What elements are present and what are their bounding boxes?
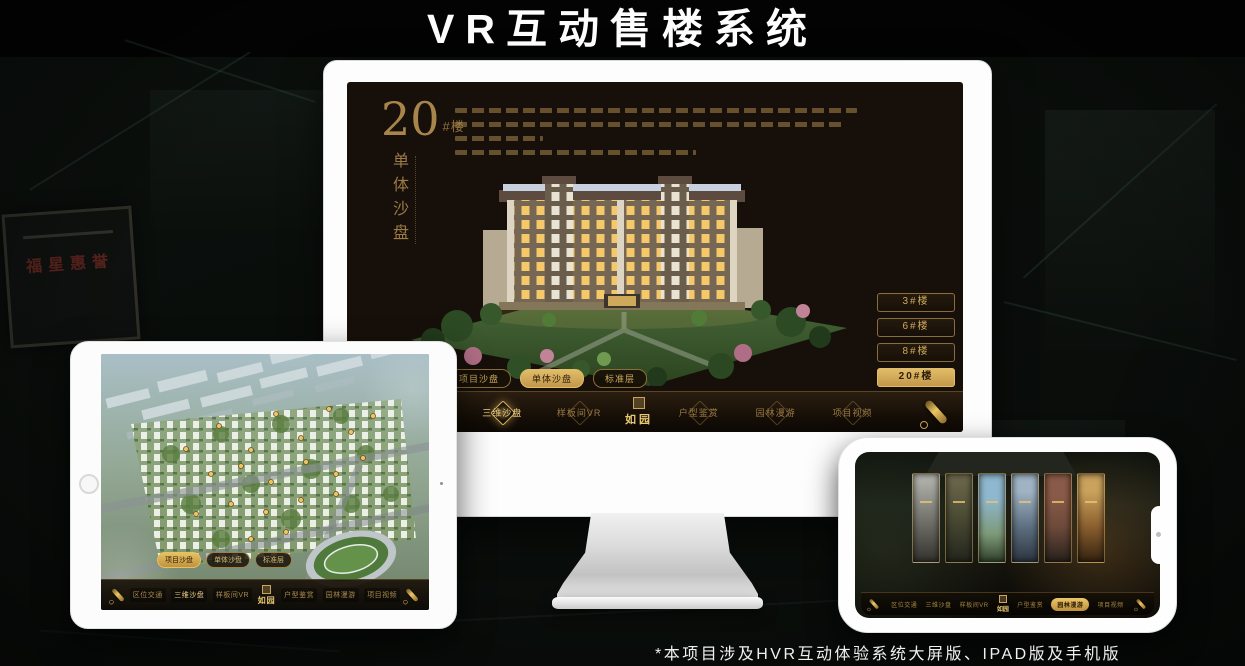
background-plaque: 福星惠誉 bbox=[1, 206, 140, 349]
gallery-panel-3[interactable] bbox=[978, 473, 1006, 563]
building-3d-render bbox=[399, 134, 859, 386]
brand-seal-icon bbox=[262, 585, 271, 594]
tab-building-sandtable[interactable]: 单体沙盘 bbox=[206, 552, 250, 568]
brand-logo[interactable]: 如园 bbox=[258, 585, 276, 606]
gallery-panel-1[interactable] bbox=[912, 473, 940, 563]
scroll-curl-shape bbox=[109, 600, 113, 604]
scroll-decoration-icon[interactable] bbox=[109, 586, 128, 605]
gallery-panel-2[interactable] bbox=[945, 473, 973, 563]
scroll-decoration-icon[interactable] bbox=[403, 586, 422, 605]
scroll-bar-shape bbox=[924, 399, 949, 425]
building-selector: 3#楼 6#楼 8#楼 20#楼 bbox=[877, 293, 955, 393]
front-camera-icon bbox=[440, 482, 443, 485]
scroll-curl-shape bbox=[867, 608, 870, 611]
scroll-decoration-icon[interactable] bbox=[919, 395, 953, 429]
tab-standard-floor[interactable]: 标准层 bbox=[255, 552, 292, 568]
background-road-line bbox=[40, 630, 339, 653]
nav-item-3d-sandtable[interactable]: 三维沙盘 bbox=[171, 588, 207, 602]
nav-item-project-video[interactable]: 项目视频 bbox=[821, 398, 883, 426]
scroll-decoration-icon[interactable] bbox=[1134, 597, 1148, 611]
monitor-stand-base bbox=[552, 597, 763, 609]
plaque-text: 福星惠誉 bbox=[7, 246, 132, 279]
nav-item-garden-tour[interactable]: 园林漫游 bbox=[323, 588, 359, 602]
tab-standard-floor[interactable]: 标准层 bbox=[593, 369, 647, 388]
text-line-placeholder bbox=[455, 108, 857, 113]
building-button-3[interactable]: 3#楼 bbox=[877, 293, 955, 312]
tablet-sandtable-mode-tabs: 项目沙盘 单体沙盘 标准层 bbox=[157, 552, 292, 568]
scroll-decoration-icon[interactable] bbox=[867, 597, 881, 611]
panorama-gallery bbox=[912, 473, 1105, 563]
phone-nav-bar: 区位交通 三维沙盘 样板间VR 如园 户型鉴赏 园林漫游 项目视频 bbox=[861, 592, 1154, 615]
nav-item-3d-sandtable[interactable]: 三维沙盘 bbox=[471, 398, 533, 426]
nav-item-location-traffic[interactable]: 区位交通 bbox=[130, 588, 166, 602]
nav-item-floorplan-gallery[interactable]: 户型鉴赏 bbox=[281, 588, 317, 602]
background-city-block bbox=[150, 90, 330, 230]
brand-logo[interactable]: 如园 bbox=[625, 397, 653, 427]
phone-device: 区位交通 三维沙盘 样板间VR 如园 户型鉴赏 园林漫游 项目视频 bbox=[838, 437, 1177, 633]
nav-item-garden-tour[interactable]: 园林漫游 bbox=[745, 398, 807, 426]
nav-item-floorplan-gallery[interactable]: 户型鉴赏 bbox=[668, 398, 730, 426]
building-button-8[interactable]: 8#楼 bbox=[877, 343, 955, 362]
scroll-curl-shape bbox=[1134, 608, 1137, 611]
nav-item-3d-sandtable[interactable]: 三维沙盘 bbox=[926, 600, 952, 609]
nav-item-floorplan-gallery[interactable]: 户型鉴赏 bbox=[1017, 600, 1043, 609]
tab-building-sandtable[interactable]: 单体沙盘 bbox=[520, 369, 584, 388]
footnote-text: *本项目涉及HVR互动体验系统大屏版、IPAD版及手机版 bbox=[655, 640, 1245, 664]
background-road-line bbox=[1003, 301, 1236, 361]
gallery-panel-4[interactable] bbox=[1011, 473, 1039, 563]
sandtable-mode-tabs: 项目沙盘 单体沙盘 标准层 bbox=[447, 369, 647, 388]
phone-notch bbox=[1151, 506, 1167, 564]
page-title: VR互动售楼系统 bbox=[0, 2, 1245, 57]
background-road-line bbox=[1023, 103, 1218, 278]
scroll-curl-shape bbox=[920, 421, 928, 429]
tablet-device: 项目沙盘 单体沙盘 标准层 区位交通 三维沙盘 样板间VR 如园 户型鉴赏 园林… bbox=[70, 341, 457, 629]
nav-item-location-traffic[interactable]: 区位交通 bbox=[891, 600, 917, 609]
tablet-screen: 项目沙盘 单体沙盘 标准层 区位交通 三维沙盘 样板间VR 如园 户型鉴赏 园林… bbox=[101, 354, 429, 610]
building-button-20[interactable]: 20#楼 bbox=[877, 368, 955, 387]
nav-item-garden-tour[interactable]: 园林漫游 bbox=[1051, 598, 1089, 611]
plaque-decorative-line bbox=[23, 230, 112, 239]
gallery-panel-6[interactable] bbox=[1077, 473, 1105, 563]
home-button bbox=[79, 474, 99, 494]
nav-item-model-room-vr[interactable]: 样板间VR bbox=[960, 600, 989, 609]
building-button-6[interactable]: 6#楼 bbox=[877, 318, 955, 337]
tab-project-sandtable[interactable]: 项目沙盘 bbox=[157, 552, 201, 568]
brand-seal-icon bbox=[999, 595, 1007, 603]
nav-item-project-video[interactable]: 项目视频 bbox=[1098, 600, 1124, 609]
aerial-masterplan-render bbox=[101, 354, 429, 610]
brand-seal-icon bbox=[633, 397, 645, 409]
gallery-panel-5[interactable] bbox=[1044, 473, 1072, 563]
text-line-placeholder bbox=[455, 122, 845, 127]
brand-logo[interactable]: 如园 bbox=[997, 595, 1009, 613]
background-city-block bbox=[1045, 110, 1215, 350]
tablet-nav-bar: 区位交通 三维沙盘 样板间VR 如园 户型鉴赏 园林漫游 项目视频 bbox=[101, 579, 429, 610]
scroll-curl-shape bbox=[403, 600, 407, 604]
nav-item-project-video[interactable]: 项目视频 bbox=[364, 588, 400, 602]
front-camera-icon bbox=[1156, 532, 1161, 537]
nav-item-model-room-vr[interactable]: 样板间VR bbox=[213, 588, 252, 602]
background-road-line bbox=[29, 51, 251, 190]
nav-item-model-room-vr[interactable]: 样板间VR bbox=[548, 398, 610, 426]
monitor-stand bbox=[557, 513, 758, 601]
promo-canvas: 福星惠誉 VR互动售楼系统 20 #楼 单体沙盘 bbox=[0, 0, 1245, 666]
phone-screen: 区位交通 三维沙盘 样板间VR 如园 户型鉴赏 园林漫游 项目视频 bbox=[855, 452, 1160, 618]
